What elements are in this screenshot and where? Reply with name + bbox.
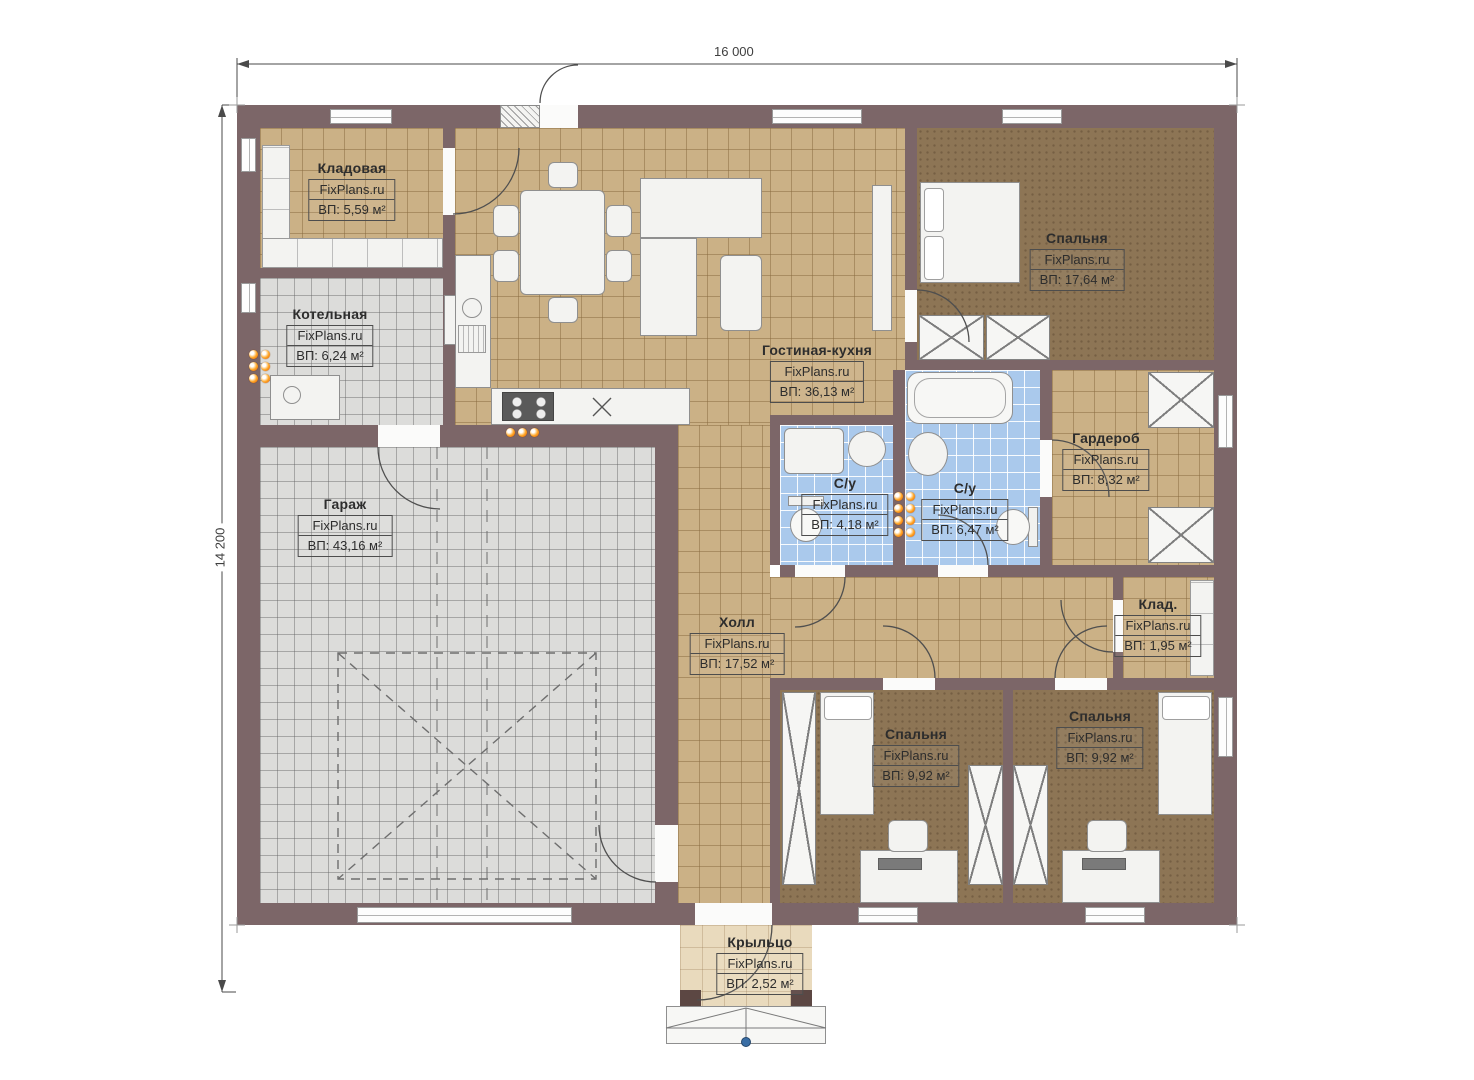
radiator-boiler (249, 350, 270, 383)
room-area: ВП: 2,52 м² (717, 974, 802, 994)
storage-shelf-bottom (262, 238, 443, 268)
watermark: FixPlans.ru (873, 746, 958, 766)
room-info-box: FixPlans.ru ВП: 6,47 м² (921, 499, 1008, 541)
window-wardrobe (1218, 395, 1233, 448)
room-label-porch: Крыльцо FixPlans.ru ВП: 2,52 м² (716, 934, 803, 995)
room-label-living-kitchen: Гостиная-кухня FixPlans.ru ВП: 36,13 м² (762, 342, 872, 403)
room-name: Котельная (286, 306, 373, 322)
room-label-boiler: Котельная FixPlans.ru ВП: 6,24 м² (286, 306, 373, 367)
desk-left-monitor (878, 858, 922, 870)
closet-master (919, 315, 984, 360)
bathtub (907, 372, 1013, 424)
door-gap-wardrobe (1040, 440, 1052, 497)
watermark: FixPlans.ru (287, 326, 372, 346)
kitchen-counter-left (455, 255, 491, 388)
room-label-bath-big: С/у FixPlans.ru ВП: 6,47 м² (921, 480, 1008, 541)
room-area: ВП: 43,16 м² (299, 536, 392, 556)
room-label-bath-small: С/у FixPlans.ru ВП: 4,18 м² (801, 475, 888, 536)
chimney-block (500, 105, 540, 128)
radiator-kitchen (506, 428, 539, 437)
room-name: Гардероб (1062, 430, 1149, 446)
washbasin-small (848, 431, 886, 467)
room-info-box: FixPlans.ru ВП: 17,52 м² (690, 633, 785, 675)
room-name: С/у (801, 475, 888, 491)
closet-bedroom-right (1013, 765, 1048, 885)
wall-closet-bottom (905, 360, 1052, 370)
room-area: ВП: 6,24 м² (287, 346, 372, 366)
room-area: ВП: 1,95 м² (1115, 636, 1200, 656)
wall-exterior-right (1214, 105, 1237, 925)
room-area: ВП: 36,13 м² (771, 382, 864, 402)
room-area: ВП: 17,64 м² (1031, 270, 1124, 290)
wall-living-bath (770, 415, 905, 425)
wall-bedrooms-divider (1003, 690, 1013, 903)
floor-hall (770, 577, 1113, 678)
door-gap-entry-top (540, 105, 578, 128)
room-area: ВП: 5,59 м² (309, 200, 394, 220)
room-name: Клад. (1114, 596, 1201, 612)
room-info-box: FixPlans.ru ВП: 5,59 м² (308, 179, 395, 221)
watermark: FixPlans.ru (922, 500, 1007, 520)
dining-chair (606, 205, 632, 237)
room-area: ВП: 4,18 м² (802, 515, 887, 535)
room-label-garage: Гараж FixPlans.ru ВП: 43,16 м² (298, 496, 393, 557)
watermark: FixPlans.ru (717, 954, 802, 974)
window-bedroom-master (1002, 109, 1062, 124)
washbasin-big (908, 432, 948, 476)
door-gap-garage-hall (655, 825, 678, 882)
room-info-box: FixPlans.ru ВП: 4,18 м² (801, 494, 888, 536)
pillow (924, 188, 944, 232)
chair-right (1087, 820, 1127, 852)
window-storage-left (241, 138, 256, 172)
pillow (924, 236, 944, 280)
floor-plan-canvas: 16 000 14 200 Кладовая FixPlans.ru ВП: 5… (0, 0, 1474, 1080)
room-label-pantry: Клад. FixPlans.ru ВП: 1,95 м² (1114, 596, 1201, 657)
room-area: ВП: 17,52 м² (691, 654, 784, 674)
watermark: FixPlans.ru (1031, 250, 1124, 270)
wall-storage-boiler (260, 268, 443, 278)
pillow (824, 696, 872, 720)
room-name: Кладовая (308, 160, 395, 176)
room-info-box: FixPlans.ru ВП: 6,24 м² (286, 325, 373, 367)
dining-table (520, 190, 605, 295)
radiator-bath (894, 492, 915, 537)
room-label-hall: Холл FixPlans.ru ВП: 17,52 м² (690, 614, 785, 675)
desk-right-monitor (1082, 858, 1126, 870)
room-area: ВП: 6,47 м² (922, 520, 1007, 540)
window-bedroom-right-bottom (1085, 907, 1145, 923)
door-gap-bedroom-right (1055, 678, 1107, 690)
wall-hall-top (780, 565, 1214, 577)
room-info-box: FixPlans.ru ВП: 9,92 м² (1056, 727, 1143, 769)
wall-garage-top (237, 425, 678, 447)
door-gap-bedroom-left (883, 678, 935, 690)
wall-exterior-left (237, 105, 260, 925)
door-gap-boiler-garage (378, 425, 440, 447)
coffee-table (720, 255, 762, 331)
room-info-box: FixPlans.ru ВП: 36,13 м² (770, 361, 865, 403)
room-name: Крыльцо (716, 934, 803, 950)
wall-corridor-bedroom (770, 690, 780, 903)
dimension-height: 14 200 (212, 524, 227, 572)
watermark: FixPlans.ru (299, 516, 392, 536)
room-info-box: FixPlans.ru ВП: 8,32 м² (1062, 449, 1149, 491)
room-label-bedroom-master: Спальня FixPlans.ru ВП: 17,64 м² (1030, 230, 1125, 291)
storage-shelf-left (262, 145, 290, 241)
dining-chair (493, 205, 519, 237)
closet-wardrobe (1148, 372, 1214, 428)
watermark: FixPlans.ru (1115, 616, 1200, 636)
room-area: ВП: 9,92 м² (1057, 748, 1142, 768)
room-name: Холл (690, 614, 785, 630)
room-info-box: FixPlans.ru ВП: 1,95 м² (1114, 615, 1201, 657)
door-gap-bath-small (795, 565, 845, 577)
room-name: Гостиная-кухня (762, 342, 872, 358)
door-gap-storage (443, 148, 455, 215)
watermark: FixPlans.ru (691, 634, 784, 654)
wall-bedroom-wardrobe (1040, 360, 1214, 370)
door-gap-bedroom-master (905, 290, 917, 342)
sofa-top (640, 178, 762, 238)
chair-left (888, 820, 928, 852)
room-label-storage: Кладовая FixPlans.ru ВП: 5,59 м² (308, 160, 395, 221)
room-info-box: FixPlans.ru ВП: 9,92 м² (872, 745, 959, 787)
dining-chair (493, 250, 519, 282)
watermark: FixPlans.ru (802, 495, 887, 515)
room-area: ВП: 8,32 м² (1063, 470, 1148, 490)
kitchen-sink (462, 298, 482, 318)
wall-hall-bottom (770, 678, 1214, 690)
window-bedroom-left-bottom (858, 907, 918, 923)
window-living (772, 109, 862, 124)
dining-chair (548, 162, 578, 188)
boiler-unit (270, 375, 340, 420)
door-gap-porch (695, 903, 772, 925)
kitchen-stove (502, 392, 554, 421)
room-area: ВП: 9,92 м² (873, 766, 958, 786)
room-name: Спальня (872, 726, 959, 742)
window-bedroom-right (1218, 697, 1233, 757)
boiler-unit-dial (283, 386, 301, 404)
window-storage (330, 109, 392, 124)
room-info-box: FixPlans.ru ВП: 2,52 м² (716, 953, 803, 995)
watermark: FixPlans.ru (309, 180, 394, 200)
closet-wardrobe (1148, 507, 1214, 563)
dining-chair (548, 297, 578, 323)
sofa-left (640, 238, 697, 336)
dimension-width: 16 000 (710, 44, 758, 59)
watermark: FixPlans.ru (1063, 450, 1148, 470)
watermark: FixPlans.ru (771, 362, 864, 382)
room-label-wardrobe: Гардероб FixPlans.ru ВП: 8,32 м² (1062, 430, 1149, 491)
tv-console (872, 185, 892, 331)
room-name: С/у (921, 480, 1008, 496)
kitchen-rack (458, 325, 486, 353)
porch-steps (666, 1006, 826, 1044)
closet-bedroom-left (782, 692, 816, 885)
garage-door (357, 907, 572, 923)
wall-corridor-bath (770, 425, 780, 565)
closet-master (986, 315, 1050, 360)
room-label-bedroom-left: Спальня FixPlans.ru ВП: 9,92 м² (872, 726, 959, 787)
watermark: FixPlans.ru (1057, 728, 1142, 748)
room-info-box: FixPlans.ru ВП: 43,16 м² (298, 515, 393, 557)
room-info-box: FixPlans.ru ВП: 17,64 м² (1030, 249, 1125, 291)
room-name: Спальня (1056, 708, 1143, 724)
dining-chair (606, 250, 632, 282)
closet-bedroom-left-2 (968, 765, 1003, 885)
window-boiler (241, 283, 256, 313)
shower-unit (784, 428, 844, 474)
room-name: Спальня (1030, 230, 1125, 246)
room-label-bedroom-right: Спальня FixPlans.ru ВП: 9,92 м² (1056, 708, 1143, 769)
room-name: Гараж (298, 496, 393, 512)
door-gap-bath-big (938, 565, 988, 577)
pillow (1162, 696, 1210, 720)
